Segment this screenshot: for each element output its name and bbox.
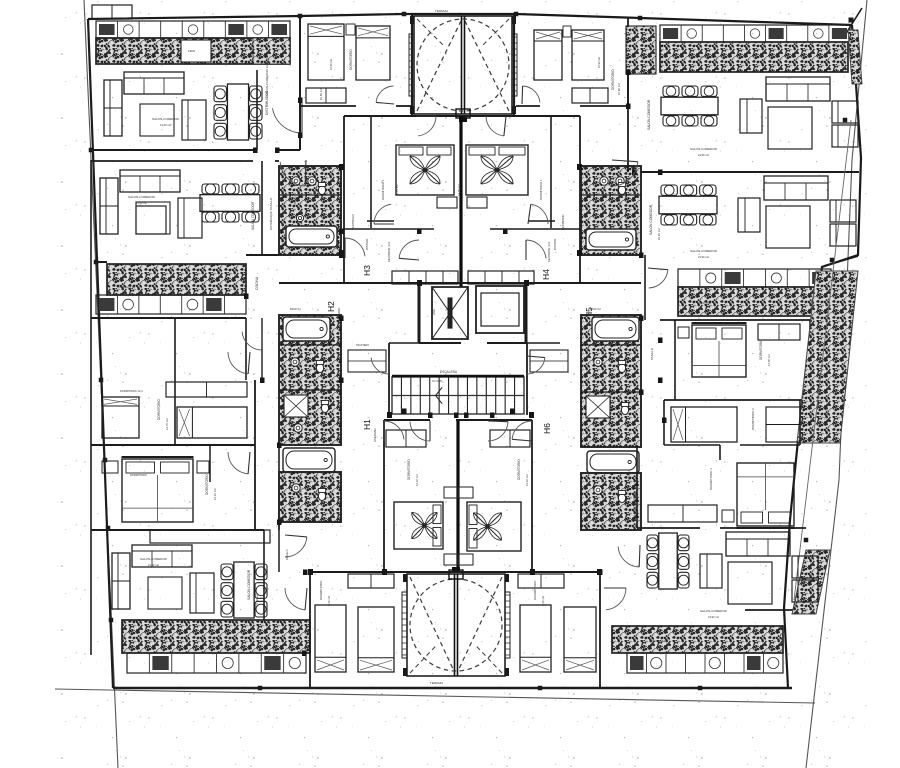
svg-text:ASERRAD.: ASERRAD.: [373, 427, 377, 442]
svg-text:SALON-COMEDOR: SALON-COMEDOR: [128, 195, 156, 199]
svg-text:RECIBIDOR 4,10: RECIBIDOR 4,10: [387, 241, 391, 262]
svg-text:TRASTERO: TRASTERO: [356, 344, 369, 347]
svg-text:H2: H2: [326, 301, 336, 312]
svg-text:PASILLO: PASILLO: [627, 469, 631, 480]
svg-text:COCINA: COCINA: [255, 276, 259, 290]
svg-text:10,80 m2: 10,80 m2: [319, 88, 323, 100]
svg-text:10,90 m2: 10,90 m2: [329, 59, 333, 70]
svg-text:DORMITORIO: DORMITORIO: [205, 474, 209, 495]
svg-text:RECIBIDOR 4,10: RECIBIDOR 4,10: [547, 241, 551, 262]
svg-text:COCINA: COCINA: [700, 301, 711, 305]
svg-text:ASC.: ASC.: [432, 308, 436, 315]
svg-text:TERRAZA: TERRAZA: [430, 681, 443, 685]
svg-text:PASILLO: PASILLO: [650, 347, 654, 360]
svg-text:13,50 m2: 13,50 m2: [767, 354, 771, 366]
svg-text:DORMITORIO: DORMITORIO: [759, 339, 763, 360]
svg-text:SALON-COMEDOR: SALON-COMEDOR: [152, 117, 180, 121]
svg-text:DISTRIB.: DISTRIB.: [553, 238, 557, 250]
svg-text:H4: H4: [541, 269, 551, 280]
svg-text:DISTRIB.: DISTRIB.: [365, 238, 369, 250]
svg-text:DORMITORIO: DORMITORIO: [611, 69, 615, 90]
svg-text:SALON-COMEDOR: SALON-COMEDOR: [690, 147, 718, 151]
svg-text:COCINA 8,40: COCINA 8,40: [700, 55, 717, 59]
svg-text:COCINA 8,20: COCINA 8,20: [150, 637, 167, 641]
svg-text:DORMITORIO 1: DORMITORIO 1: [539, 179, 543, 200]
svg-text:DORMITORIO 2: DORMITORIO 2: [751, 408, 755, 430]
svg-text:9,20 m2: 9,20 m2: [541, 595, 545, 606]
svg-text:FRIG: FRIG: [188, 49, 196, 53]
svg-text:DUPLICADO: DUPLICADO: [337, 307, 341, 324]
svg-text:13,70 m2: 13,70 m2: [165, 418, 169, 430]
svg-text:9,20 m2: 9,20 m2: [327, 595, 331, 606]
svg-text:24,90 m2: 24,90 m2: [708, 615, 719, 619]
svg-text:10,80 m2: 10,80 m2: [617, 83, 621, 95]
svg-text:21,60 m2: 21,60 m2: [148, 563, 159, 567]
svg-text:H6: H6: [542, 423, 552, 434]
svg-text:PASILLO: PASILLO: [269, 197, 273, 210]
svg-text:BANO: BANO: [617, 197, 621, 204]
svg-text:SALON-COMEDOR: SALON-COMEDOR: [690, 249, 718, 253]
svg-text:DORMITORIO: DORMITORIO: [517, 459, 521, 480]
svg-text:21,40 m2: 21,40 m2: [255, 594, 259, 606]
svg-text:DORMITORIO 1: DORMITORIO 1: [709, 468, 713, 490]
svg-text:DORMITORIO 12,4: DORMITORIO 12,4: [120, 389, 143, 393]
svg-text:BANO: BANO: [293, 197, 297, 204]
svg-text:SALON COMEDOR: SALON COMEDOR: [251, 201, 255, 230]
svg-text:DORMITORIO 1: DORMITORIO 1: [381, 179, 385, 200]
svg-text:SALON COMEDOR: SALON COMEDOR: [649, 204, 653, 235]
svg-text:COCINA 8,20: COCINA 8,20: [118, 285, 135, 289]
svg-text:RECIBIDOR: RECIBIDOR: [561, 214, 565, 230]
svg-text:BANO 5,2: BANO 5,2: [590, 308, 601, 311]
svg-text:24,90 m2: 24,90 m2: [698, 255, 709, 259]
svg-text:SALON COMEDOR: SALON COMEDOR: [647, 99, 651, 130]
svg-text:16 x 0,28: 16 x 0,28: [432, 380, 443, 383]
svg-text:14,05 m2: 14,05 m2: [395, 184, 399, 196]
svg-text:SALON-COMEDOR: SALON-COMEDOR: [700, 609, 728, 613]
svg-text:SALON COMEDOR: SALON COMEDOR: [633, 491, 637, 520]
svg-text:DORMITORIO: DORMITORIO: [319, 580, 323, 600]
svg-text:H3: H3: [362, 265, 372, 276]
svg-text:13,10 m2: 13,10 m2: [525, 474, 529, 486]
svg-text:24,90 m2: 24,90 m2: [657, 228, 661, 240]
svg-text:H1: H1: [362, 419, 372, 430]
svg-text:COCINA 8,40: COCINA 8,40: [650, 639, 667, 643]
svg-text:21,60 m2: 21,60 m2: [160, 123, 171, 127]
svg-text:13,10 m2: 13,10 m2: [415, 474, 419, 486]
svg-text:14,05 m2: 14,05 m2: [457, 184, 461, 196]
svg-text:DISTRIBUIDOR: DISTRIBUIDOR: [269, 211, 273, 230]
svg-text:SALON-COMEDOR 22,10 m2: SALON-COMEDOR 22,10 m2: [265, 55, 269, 96]
svg-text:24,90 m2: 24,90 m2: [698, 153, 709, 157]
svg-text:BANO 5,2: BANO 5,2: [290, 308, 301, 311]
svg-text:SALON COMEDOR: SALON COMEDOR: [247, 569, 251, 600]
svg-text:21,60 m2: 21,60 m2: [136, 201, 147, 205]
svg-text:TERRAZA: TERRAZA: [435, 9, 448, 13]
svg-text:DORMITORIO: DORMITORIO: [157, 399, 161, 420]
svg-text:SALON-COMEDOR: SALON-COMEDOR: [140, 557, 168, 561]
svg-text:DORMITORIO: DORMITORIO: [407, 459, 411, 480]
svg-text:DORMITORIO: DORMITORIO: [130, 473, 147, 477]
svg-text:VESTIBULO: VESTIBULO: [351, 213, 355, 230]
svg-text:DORMITORIO: DORMITORIO: [533, 580, 537, 600]
svg-text:PASILLO: PASILLO: [285, 549, 289, 560]
svg-text:DORMITORIO: DORMITORIO: [349, 49, 353, 70]
svg-text:12,10 m2: 12,10 m2: [213, 488, 217, 500]
svg-text:10,90 m2: 10,90 m2: [597, 57, 601, 68]
svg-text:ESCALERA: ESCALERA: [440, 370, 458, 374]
